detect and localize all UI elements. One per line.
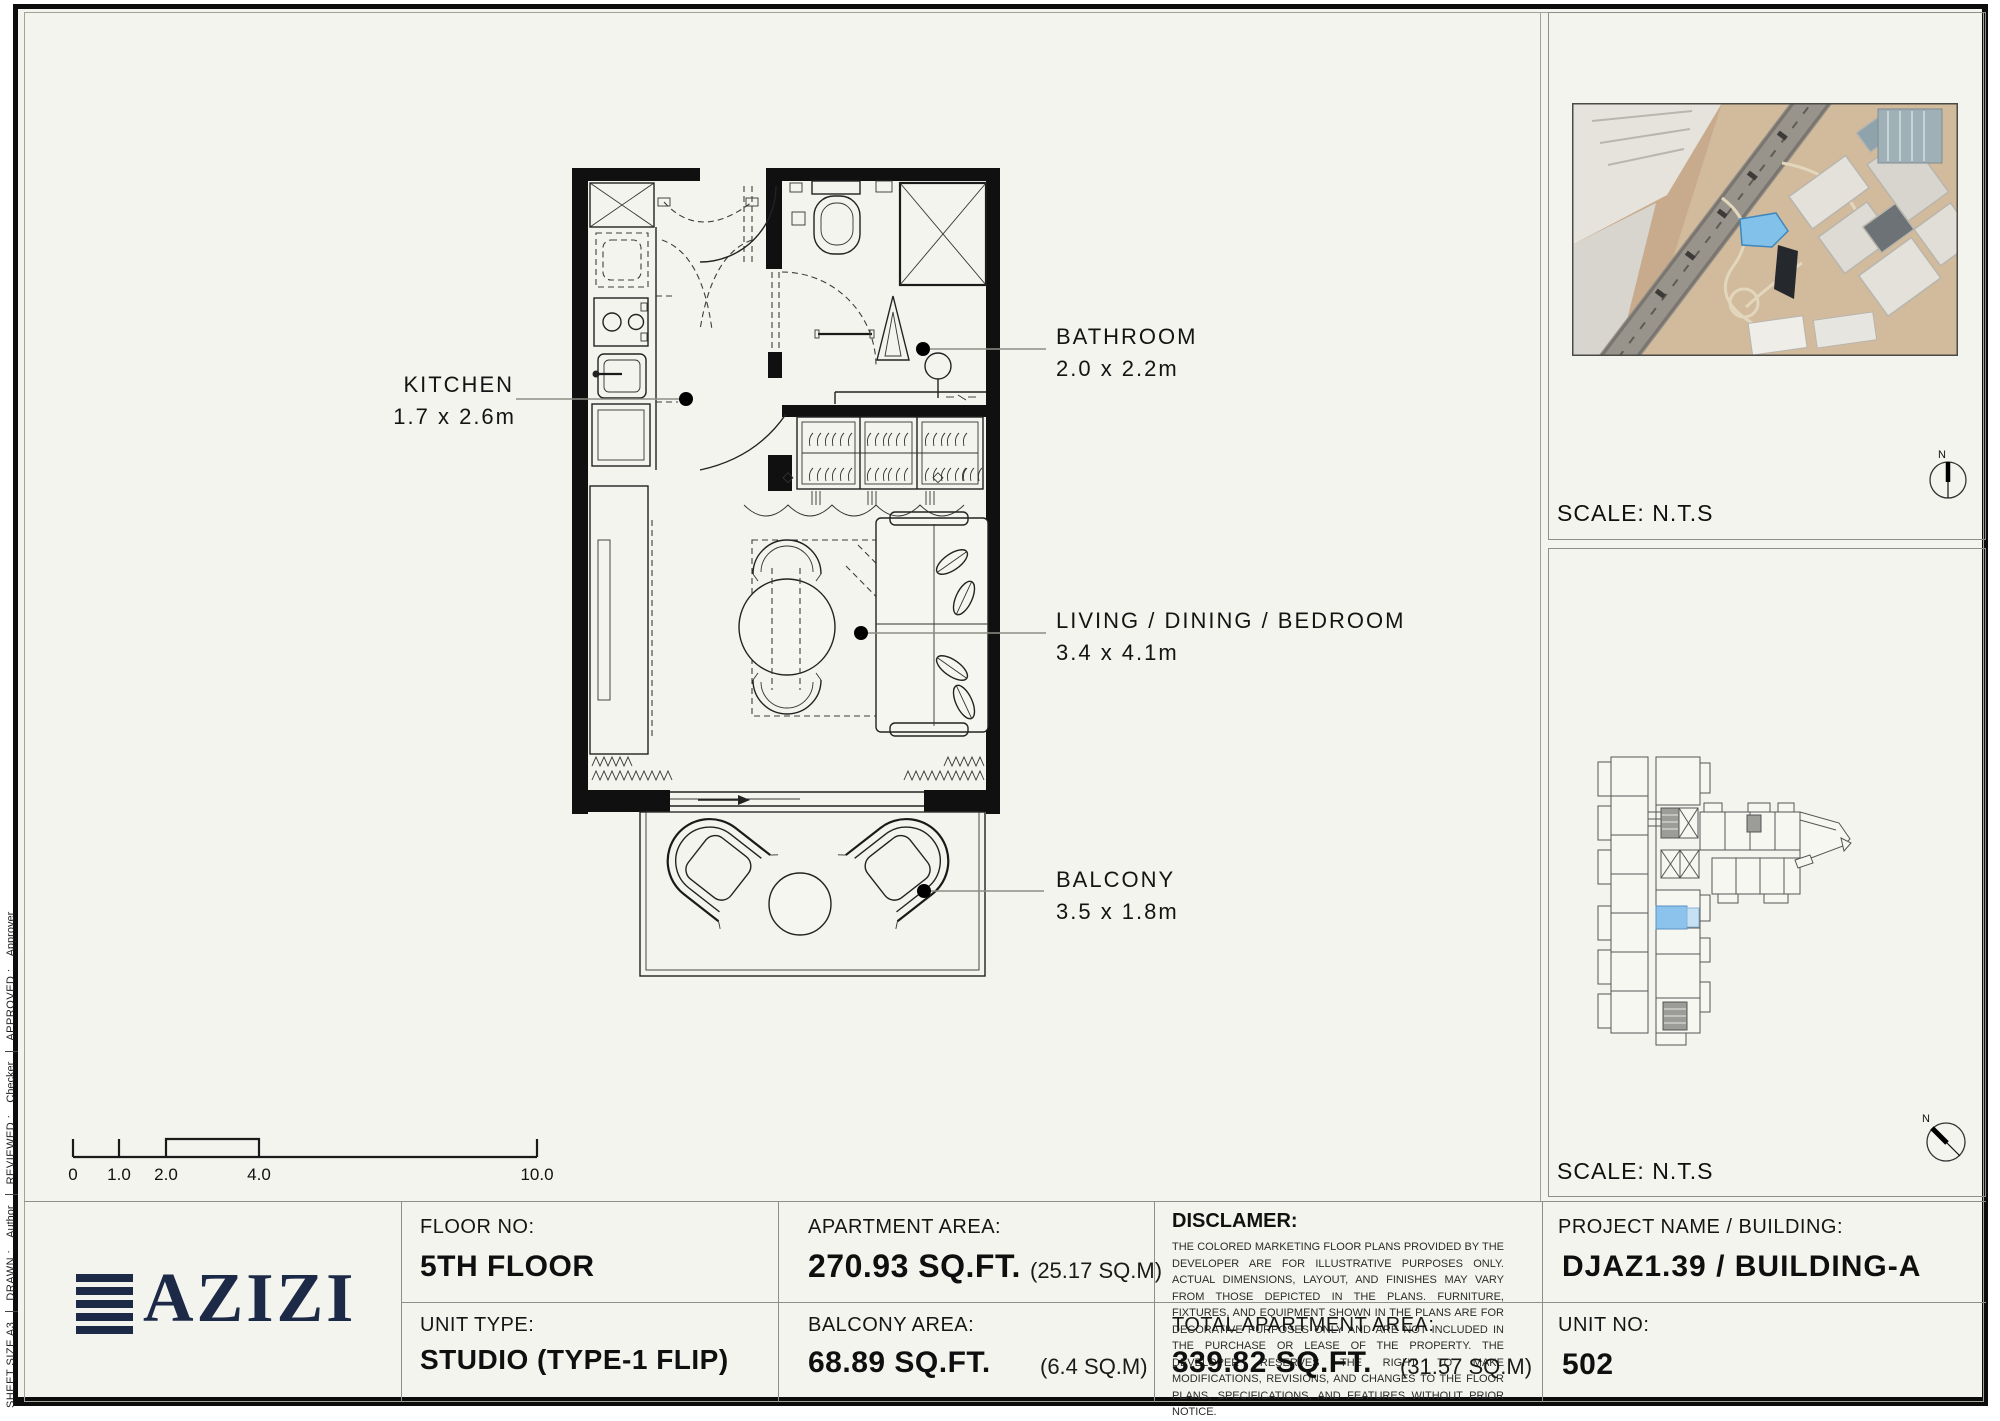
- drawn-value: Author: [5, 1205, 17, 1237]
- bathroom-dims: 2.0 x 2.2m: [1056, 356, 1179, 381]
- unit-no-label: UNIT NO:: [1558, 1314, 1649, 1337]
- highlighted-unit: [1656, 906, 1687, 929]
- bathroom-label: BATHROOM: [1056, 324, 1197, 349]
- apartment-area-label: APARTMENT AREA:: [808, 1216, 1001, 1239]
- floorplan-drawing: .w{fill:#101010;stroke:none} .ln{fill:no…: [24, 12, 1541, 1198]
- scalebar-10: 10.0: [520, 1165, 553, 1184]
- strip-divider: [5, 1194, 18, 1195]
- total-area-value: 339.82 SQ.FT.: [1172, 1346, 1372, 1380]
- strip-divider: [5, 1051, 18, 1052]
- scalebar-1: 1.0: [107, 1165, 131, 1184]
- unit-type-label: UNIT TYPE:: [420, 1314, 534, 1337]
- balcony-dims: 3.5 x 1.8m: [1056, 899, 1179, 924]
- total-area-label: TOTAL APARTMENT AREA:: [1172, 1314, 1434, 1337]
- apartment-area-value: 270.93 SQ.FT.: [808, 1248, 1021, 1285]
- kitchen-label: KITCHEN: [403, 372, 514, 397]
- living-label: LIVING / DINING / BEDROOM: [1056, 608, 1405, 633]
- titleblock-top-line: [24, 1201, 1986, 1202]
- reviewed-label: REVIEWED :: [5, 1115, 17, 1185]
- balcony-area-label: BALCONY AREA:: [808, 1314, 974, 1337]
- unit-type-value: STUDIO (TYPE-1 FLIP): [420, 1344, 729, 1376]
- compass-n-label: N: [1922, 1113, 1930, 1125]
- balcony-furniture: [640, 798, 985, 976]
- project-name-value: DJAZ1.39 / BUILDING-A: [1562, 1250, 1921, 1284]
- floor-no-label: FLOOR NO:: [420, 1216, 535, 1239]
- balcony-area-metric: (6.4 SQ.M): [1040, 1354, 1148, 1380]
- scalebar-2: 2.0: [154, 1165, 178, 1184]
- compass-north-icon: N: [1916, 1108, 1972, 1172]
- building-keyplan: .k{fill:#f7f7f2;stroke:#555;stroke-width…: [1548, 550, 1986, 1197]
- keyplan-scale-label: SCALE: N.T.S: [1557, 1158, 1713, 1185]
- apartment-area-metric: (25.17 SQ.M): [1030, 1258, 1162, 1284]
- drawn-label: DRAWN :: [5, 1250, 17, 1301]
- kitchen-fixtures: [590, 183, 678, 470]
- compass-n-label: N: [1938, 449, 1946, 461]
- balcony-area-value: 68.89 SQ.FT.: [808, 1346, 991, 1380]
- sheet-size-label: SHEET SIZE A3: [5, 1322, 17, 1408]
- reviewed-value: Checker: [5, 1062, 17, 1103]
- disclaimer-label: DISCLAMER:: [1172, 1210, 1298, 1233]
- kitchen-dims: 1.7 x 2.6m: [393, 404, 516, 429]
- scalebar-0: 0: [68, 1165, 77, 1184]
- compass-north-icon: N: [1918, 446, 1974, 510]
- balcony-label: BALCONY: [1056, 867, 1175, 892]
- unit-no-value: 502: [1562, 1348, 1614, 1382]
- bathroom-fixtures: [772, 181, 986, 404]
- sheet-revision-strip: SHEET SIZE A3 DRAWN : Author REVIEWED : …: [4, 912, 18, 1408]
- azizi-logo: AZIZI: [76, 1268, 356, 1339]
- total-area-metric: (31.57 SQ.M): [1400, 1354, 1532, 1380]
- azizi-logo-text: AZIZI: [143, 1268, 356, 1330]
- living-dims: 3.4 x 4.1m: [1056, 640, 1179, 665]
- living-furniture: [590, 486, 988, 754]
- azizi-logo-icon: [76, 1274, 133, 1339]
- scalebar-4: 4.0: [247, 1165, 271, 1184]
- scale-bar: 0 1.0 2.0 4.0 10.0: [68, 1139, 553, 1184]
- map-scale-label: SCALE: N.T.S: [1557, 500, 1713, 527]
- project-name-label: PROJECT NAME / BUILDING:: [1558, 1216, 1843, 1239]
- satellite-map: [1572, 103, 1958, 356]
- approved-value: Approver: [5, 912, 17, 957]
- floor-no-value: 5TH FLOOR: [420, 1250, 595, 1284]
- strip-divider: [5, 1311, 18, 1312]
- approved-label: APPROVED :: [5, 968, 17, 1040]
